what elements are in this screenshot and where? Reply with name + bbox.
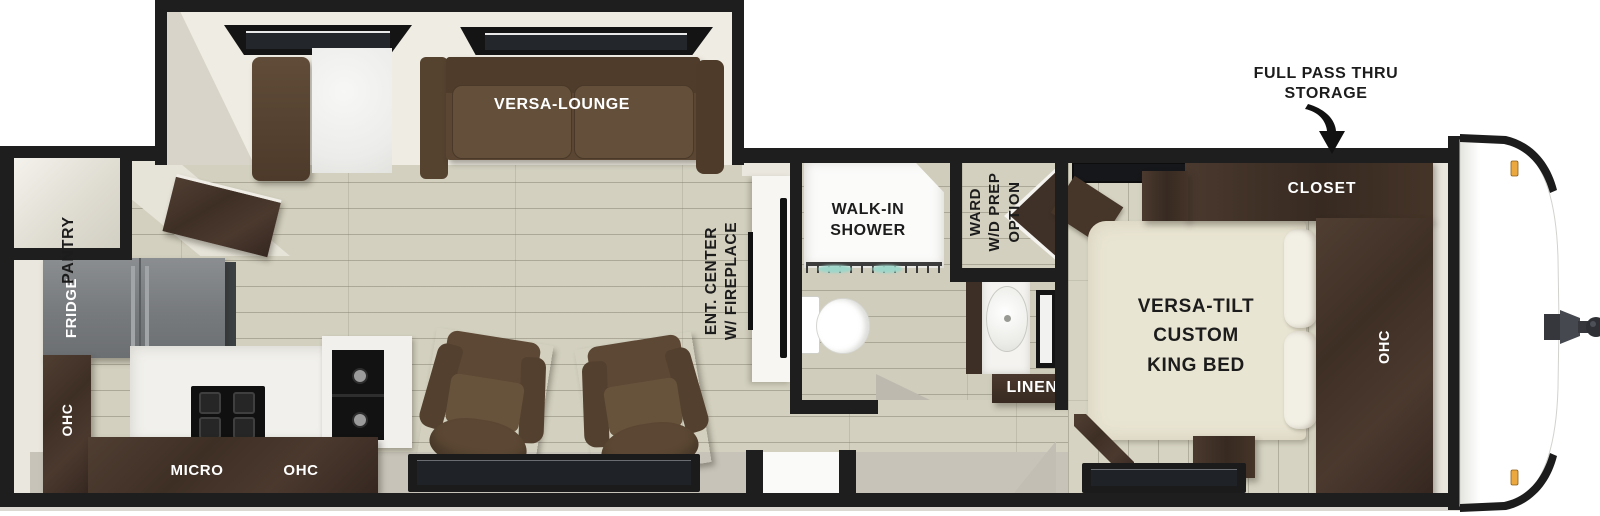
ent-center-label-line2: W/ FIREPLACE	[722, 222, 742, 340]
marker-light-icon	[1511, 161, 1518, 176]
wall-bottom-shadow	[0, 507, 1462, 511]
fridge-door-seam	[139, 258, 141, 358]
lounge-table	[312, 48, 392, 173]
closet-label: CLOSET	[1282, 180, 1362, 198]
front-cap	[1456, 128, 1600, 516]
toilet-bowl	[816, 298, 870, 354]
mirror-glass	[1040, 295, 1052, 363]
storage-arrow-icon	[1298, 104, 1360, 156]
burner-icon	[233, 417, 255, 439]
burner-icon	[199, 417, 221, 439]
ward-wall-vertical	[950, 148, 962, 280]
ward-label-line3: OPTION	[1005, 181, 1025, 242]
lounge-armrest	[420, 57, 448, 179]
ward-label-line1: WARD	[966, 188, 986, 236]
bathroom-wall-left	[790, 148, 802, 412]
burner-icon	[233, 392, 255, 414]
pantry-room: PANTRY	[2, 146, 132, 260]
ward-label: WARD W/D PREP OPTION	[966, 152, 1024, 272]
entry-door-post	[839, 450, 856, 494]
vanity-side	[966, 278, 982, 374]
ent-center-label: ENT. CENTER W/ FIREPLACE	[700, 211, 744, 351]
bed-label-line2: CUSTOM	[1096, 321, 1296, 350]
storage-callout-line1: FULL PASS THRU	[1216, 64, 1436, 84]
window-glass	[1091, 469, 1237, 486]
bedroom-right-trim	[1430, 150, 1450, 508]
fireplace-icon	[748, 232, 753, 330]
lounge-armrest	[696, 60, 724, 174]
bed-label-line3: KING BED	[1096, 351, 1296, 380]
fridge-handle-left	[131, 266, 135, 348]
ward-wall-horizontal	[950, 268, 1070, 282]
fridge-handle-right	[145, 266, 149, 348]
versa-lounge-label: VERSA-LOUNGE	[452, 96, 672, 114]
burner-icon	[199, 392, 221, 414]
window-glass	[417, 460, 691, 485]
shower-label-line1: WALK-IN	[798, 200, 938, 221]
lounge-slideout: VERSA-LOUNGE	[155, 0, 744, 165]
entry-door-post	[746, 450, 763, 494]
wall-bottom	[0, 493, 1462, 507]
drawer-knob-icon	[352, 412, 368, 428]
shower-label-line2: SHOWER	[798, 221, 938, 242]
storage-callout: FULL PASS THRU STORAGE	[1216, 64, 1436, 104]
mirror	[1036, 290, 1056, 368]
bedroom-ohc-label: OHC	[1376, 321, 1394, 373]
shower-glass-sparkle	[818, 265, 852, 273]
tv-icon	[780, 198, 787, 358]
drawer-seam	[332, 394, 384, 397]
stove	[191, 386, 265, 442]
bed-label-line1: VERSA-TILT	[1096, 292, 1296, 321]
sink-basin	[986, 286, 1028, 352]
sink-drain-icon	[1004, 315, 1011, 322]
micro-label: MICRO	[152, 462, 242, 479]
kitchen-island-drawers	[332, 350, 384, 440]
drawer-knob-icon	[352, 368, 368, 384]
ohc-kitchen-label: OHC	[266, 462, 336, 479]
bed-label: VERSA-TILT CUSTOM KING BED	[1096, 292, 1296, 380]
marker-light-icon	[1511, 470, 1518, 485]
window-glass	[485, 33, 687, 50]
floorplan-canvas: FRIDGE OHC MICRO OHC ENT. CENTER W/	[0, 0, 1600, 516]
ent-center-label-line1: ENT. CENTER	[702, 227, 722, 335]
shower-glass-sparkle	[872, 265, 902, 273]
wall-bedroom-divider	[1055, 148, 1068, 410]
ward-label-line2: W/D PREP	[985, 173, 1005, 252]
shower-label: WALK-IN SHOWER	[798, 200, 938, 242]
bedroom-ohc-cabinet	[1316, 218, 1433, 494]
closet-cabinet-step	[1142, 171, 1188, 221]
window-glass	[246, 31, 390, 49]
ohc-left-label: OHC	[58, 395, 76, 445]
storage-callout-line2: STORAGE	[1216, 84, 1436, 104]
living-window	[408, 454, 700, 492]
pantry-label: PANTRY	[58, 195, 80, 305]
hitch-icon	[1544, 310, 1600, 344]
entry-door	[763, 452, 839, 493]
bathroom-wall-bottom	[790, 400, 878, 414]
lounge-chaise	[252, 57, 310, 181]
slideout-window	[455, 27, 713, 55]
bedroom-window	[1082, 463, 1246, 493]
